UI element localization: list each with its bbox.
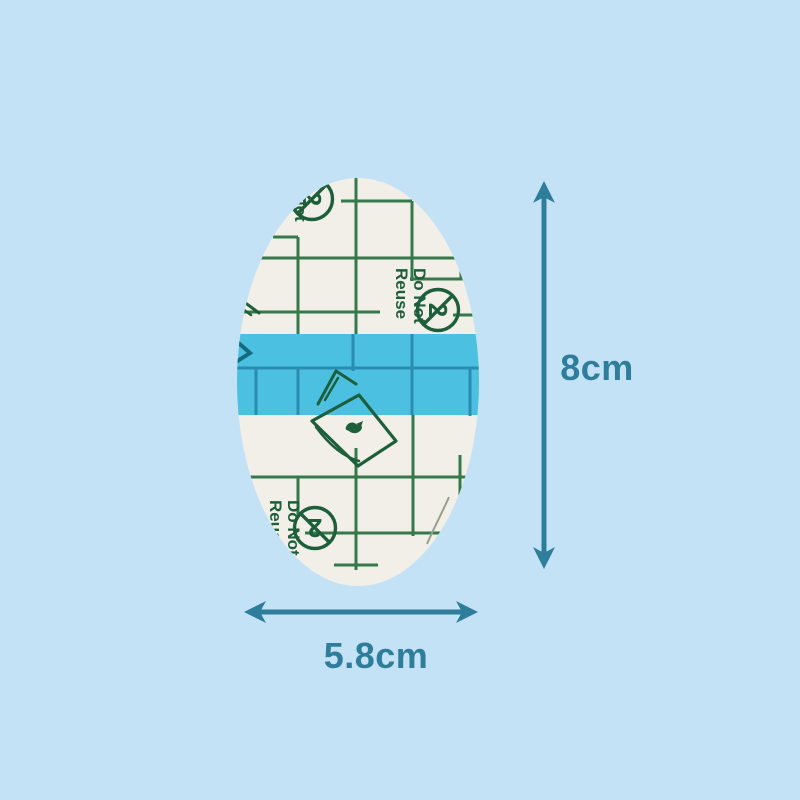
liner-text-line2: Reuse [273,166,292,217]
liner-text-line2: Reuse [266,500,285,551]
liner-text-line2: Reuse [392,268,411,319]
no-reuse-glyph: 2 [308,513,322,543]
dressing-graphic: 2 2 2 Do Not Reuse Do [0,0,800,800]
width-arrow [244,601,478,623]
width-label: 5.8cm [316,638,436,674]
do-not-reuse-text-top: Do Not Reuse [273,166,310,222]
do-not-reuse-text-middle: Do Not Reuse [392,268,429,324]
liner-text-line1: Do Not [410,268,429,324]
adhesive-band [230,334,488,415]
liner-text-line1: Do Not [291,166,310,222]
dressing-oval: 2 2 2 Do Not Reuse Do [230,166,488,586]
do-not-reuse-text-bottom: Do Not Reuse [266,500,303,556]
height-label: 8cm [552,350,642,386]
product-illustration: 2 2 2 Do Not Reuse Do [0,0,800,800]
liner-text-line1: Do Not [284,500,303,556]
